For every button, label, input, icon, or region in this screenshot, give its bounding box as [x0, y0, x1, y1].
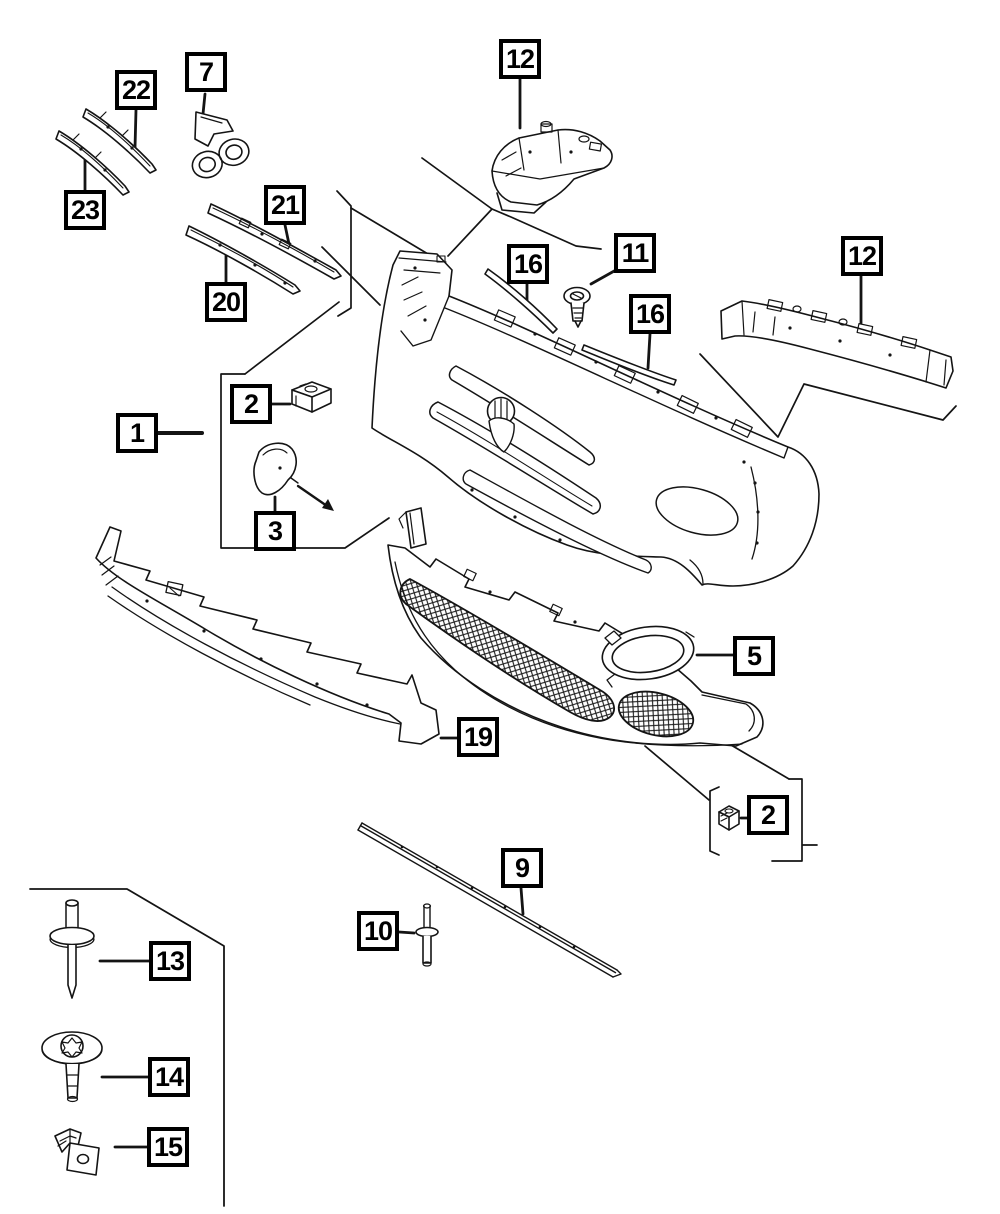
part-rivet-10: [416, 904, 438, 966]
callout-5[interactable]: 5: [733, 636, 775, 676]
part-sill-strip-9: [358, 823, 621, 977]
part-tow-hook-cover-3: [254, 443, 334, 511]
parts-diagram: 22 7 23 21 20 12 16 11 16 12 1 2 3 5 19 …: [0, 0, 1000, 1214]
callout-16-right[interactable]: 16: [629, 294, 671, 334]
part-rivet-13: [50, 900, 94, 998]
callout-20[interactable]: 20: [205, 282, 247, 322]
part-mounting-rail-12-right: [721, 300, 953, 388]
part-lower-valance-19: [96, 527, 439, 744]
callout-3[interactable]: 3: [254, 511, 296, 551]
callout-13[interactable]: 13: [149, 941, 191, 981]
part-upper-fascia-1: [372, 251, 819, 586]
callout-10[interactable]: 10: [357, 911, 399, 951]
callout-15[interactable]: 15: [147, 1127, 189, 1167]
callout-9[interactable]: 9: [501, 848, 543, 888]
callout-12-right[interactable]: 12: [841, 236, 883, 276]
part-washer-bolt-14: [42, 1032, 102, 1102]
part-clip-nut-2-upper: [292, 382, 331, 412]
callout-11[interactable]: 11: [614, 233, 656, 273]
part-screw-11: [564, 288, 590, 328]
callout-14[interactable]: 14: [148, 1057, 190, 1097]
callout-1[interactable]: 1: [116, 413, 158, 453]
part-clip-nut-2-lower: [719, 806, 739, 830]
callout-16-left[interactable]: 16: [507, 244, 549, 284]
callout-7[interactable]: 7: [185, 52, 227, 92]
part-mounting-bracket-12-left: [492, 122, 612, 214]
callout-22[interactable]: 22: [115, 70, 157, 110]
callout-23[interactable]: 23: [64, 190, 106, 230]
part-badge-logo-7: [188, 112, 253, 181]
callout-2-lower[interactable]: 2: [747, 795, 789, 835]
callout-19[interactable]: 19: [457, 717, 499, 757]
callout-2-upper[interactable]: 2: [230, 384, 272, 424]
callout-12-top[interactable]: 12: [499, 39, 541, 79]
diagram-artwork: [0, 0, 1000, 1214]
callout-21[interactable]: 21: [264, 185, 306, 225]
part-retainer-clip-15: [55, 1129, 99, 1175]
